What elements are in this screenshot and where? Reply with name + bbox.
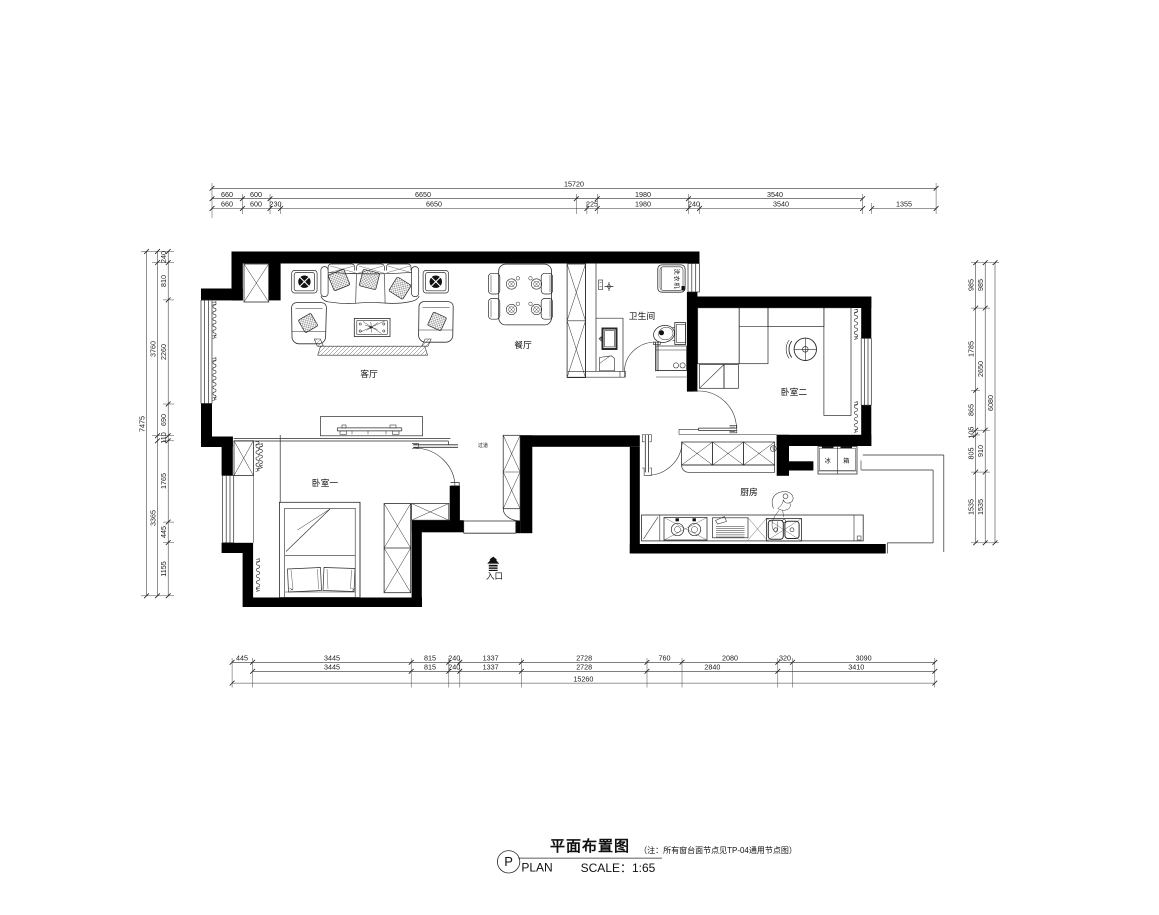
svg-text:1535: 1535 (976, 499, 985, 515)
svg-text:6650: 6650 (426, 200, 442, 209)
svg-text:厨房: 厨房 (740, 486, 758, 497)
svg-text:110: 110 (159, 432, 168, 443)
svg-text:3410: 3410 (848, 663, 864, 672)
svg-text:卧室一: 卧室一 (312, 477, 339, 488)
svg-text:入口: 入口 (486, 571, 503, 581)
svg-text:2728: 2728 (576, 654, 592, 663)
svg-text:3445: 3445 (324, 654, 340, 663)
svg-text:660: 660 (221, 200, 233, 209)
svg-text:3365: 3365 (149, 510, 158, 526)
svg-text:15720: 15720 (564, 180, 584, 189)
svg-text:1980: 1980 (635, 190, 651, 199)
svg-text:卧室二: 卧室二 (781, 386, 808, 397)
svg-text:衣: 衣 (673, 275, 681, 281)
svg-text:240: 240 (688, 200, 700, 209)
svg-text:985: 985 (967, 279, 976, 291)
svg-text:810: 810 (159, 275, 168, 287)
svg-text:1155: 1155 (159, 561, 168, 576)
svg-text:1355: 1355 (896, 200, 912, 209)
svg-text:660: 660 (221, 190, 233, 199)
svg-text:1535: 1535 (967, 499, 976, 515)
svg-text:240: 240 (448, 654, 460, 663)
svg-text:SCALE：1:65: SCALE：1:65 (581, 861, 656, 875)
svg-text:15260: 15260 (573, 674, 593, 683)
svg-text:2080: 2080 (722, 654, 738, 663)
svg-text:600: 600 (250, 200, 262, 209)
svg-text:（注：所有窗台面节点见TP-04通用节点图）: （注：所有窗台面节点见TP-04通用节点图） (639, 845, 797, 855)
svg-text:1337: 1337 (483, 663, 499, 672)
svg-text:230: 230 (270, 200, 282, 209)
svg-text:1337: 1337 (483, 654, 499, 663)
svg-text:过道: 过道 (478, 442, 488, 449)
svg-text:3760: 3760 (149, 341, 158, 357)
svg-text:445: 445 (236, 654, 248, 663)
svg-text:225: 225 (586, 200, 598, 209)
svg-text:平面布置图: 平面布置图 (550, 837, 630, 855)
svg-text:3090: 3090 (856, 654, 872, 663)
svg-text:客厅: 客厅 (360, 368, 378, 379)
svg-text:445: 445 (159, 526, 168, 538)
svg-text:815: 815 (424, 654, 436, 663)
svg-text:1980: 1980 (635, 200, 651, 209)
svg-text:240: 240 (448, 663, 460, 672)
svg-text:760: 760 (659, 654, 671, 663)
svg-text:3445: 3445 (324, 663, 340, 672)
svg-text:3540: 3540 (767, 190, 783, 199)
svg-text:320: 320 (779, 654, 791, 663)
svg-text:805: 805 (967, 448, 976, 460)
svg-text:餐厅: 餐厅 (514, 339, 532, 350)
svg-text:2840: 2840 (704, 663, 720, 672)
svg-text:1785: 1785 (967, 341, 976, 357)
svg-text:2650: 2650 (976, 361, 985, 377)
svg-text:6650: 6650 (415, 190, 431, 199)
svg-text:910: 910 (976, 445, 985, 457)
svg-text:815: 815 (424, 663, 436, 672)
svg-text:7475: 7475 (138, 416, 147, 432)
svg-text:105: 105 (967, 427, 976, 439)
svg-text:卫生间: 卫生间 (629, 310, 656, 321)
svg-text:240: 240 (159, 251, 168, 263)
svg-text:3540: 3540 (773, 200, 789, 209)
svg-text:P: P (504, 854, 513, 869)
svg-text:箱: 箱 (843, 457, 849, 465)
svg-text:冰: 冰 (825, 457, 832, 465)
svg-text:985: 985 (976, 279, 985, 291)
svg-text:600: 600 (250, 190, 262, 199)
svg-text:690: 690 (159, 414, 168, 426)
svg-text:1765: 1765 (159, 473, 168, 489)
svg-text:6080: 6080 (986, 395, 995, 411)
svg-text:PLAN: PLAN (521, 861, 552, 875)
svg-text:洗: 洗 (673, 268, 681, 274)
svg-text:2260: 2260 (159, 344, 168, 360)
svg-text:2728: 2728 (576, 663, 592, 672)
svg-text:865: 865 (967, 404, 976, 416)
svg-text:机: 机 (673, 282, 681, 288)
